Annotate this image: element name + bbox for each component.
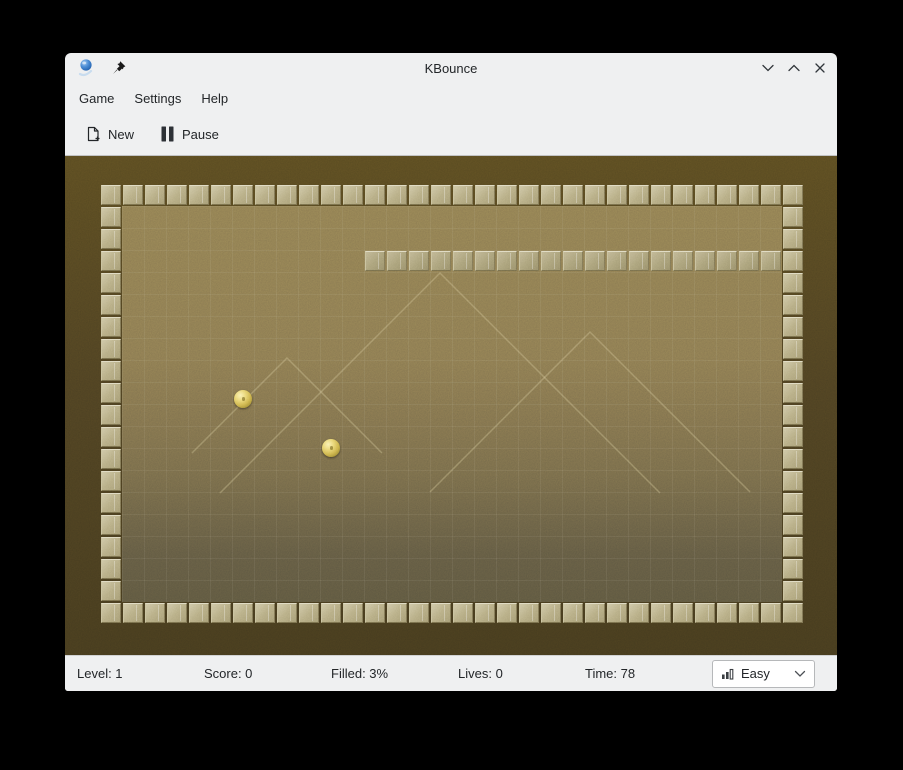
wall-tile [783, 383, 803, 403]
wall-tile [585, 603, 605, 623]
wall-tile [783, 251, 803, 271]
status-level: Level: 1 [77, 666, 204, 681]
wall-tile [475, 603, 495, 623]
wall-tile [101, 493, 121, 513]
wall-tile [673, 185, 693, 205]
wall-tile [277, 185, 297, 205]
wall-tile [277, 603, 297, 623]
wall-tile [629, 603, 649, 623]
wall-tile [519, 185, 539, 205]
wall-tile [101, 581, 121, 601]
statusbar: Level: 1 Score: 0 Filled: 3% Lives: 0 Ti… [65, 655, 837, 691]
difficulty-value: Easy [741, 666, 770, 681]
wall-tile [365, 185, 385, 205]
new-document-icon [85, 126, 101, 142]
filled-tile [387, 251, 407, 271]
filled-tile [431, 251, 451, 271]
wall-tile [101, 427, 121, 447]
filled-tile [695, 251, 715, 271]
wall-tile [211, 185, 231, 205]
wall-tile [365, 603, 385, 623]
wall-tile [101, 229, 121, 249]
wall-tile [167, 603, 187, 623]
filled-tile [497, 251, 517, 271]
pause-label: Pause [182, 127, 219, 142]
wall-tile [783, 581, 803, 601]
menubar: Game Settings Help [65, 83, 837, 113]
pause-icon [160, 126, 175, 142]
filled-tile [365, 251, 385, 271]
wall-tile [783, 515, 803, 535]
wall-tile [101, 339, 121, 359]
wall-tile [783, 317, 803, 337]
filled-tile [651, 251, 671, 271]
wall-tile [607, 603, 627, 623]
wall-tile [695, 185, 715, 205]
wall-tile [541, 185, 561, 205]
wall-tile [431, 603, 451, 623]
filled-tile [563, 251, 583, 271]
wall-tile [783, 207, 803, 227]
wall-tile [255, 185, 275, 205]
chevron-down-icon [794, 670, 806, 678]
filled-tile [453, 251, 473, 271]
filled-tile [585, 251, 605, 271]
wall-tile [101, 449, 121, 469]
wall-tile [717, 185, 737, 205]
status-time: Time: 78 [585, 666, 712, 681]
wall-tile [783, 185, 803, 205]
menu-help[interactable]: Help [191, 87, 238, 110]
wall-tile [101, 185, 121, 205]
wall-tile [431, 185, 451, 205]
wall-tile [233, 185, 253, 205]
titlebar: KBounce [65, 53, 837, 83]
wall-tile [783, 361, 803, 381]
bounce-ball [234, 390, 252, 408]
wall-tile [673, 603, 693, 623]
wall-tile [783, 471, 803, 491]
new-game-label: New [108, 127, 134, 142]
wall-tile [761, 185, 781, 205]
wall-tile [101, 405, 121, 425]
wall-tile [387, 603, 407, 623]
new-game-button[interactable]: New [77, 120, 142, 148]
wall-tile [783, 603, 803, 623]
wall-tile [101, 537, 121, 557]
wall-tile [783, 537, 803, 557]
wall-tile [783, 405, 803, 425]
wall-tile [123, 603, 143, 623]
filled-tile [673, 251, 693, 271]
wall-tile [409, 603, 429, 623]
filled-tile [717, 251, 737, 271]
wall-tile [299, 603, 319, 623]
difficulty-select[interactable]: Easy [712, 660, 815, 688]
wall-tile [783, 427, 803, 447]
wall-tile [321, 185, 341, 205]
wall-tile [563, 603, 583, 623]
filled-tile [409, 251, 429, 271]
wall-tile [101, 361, 121, 381]
wall-tile [255, 603, 275, 623]
filled-tile [629, 251, 649, 271]
wall-tile [101, 273, 121, 293]
filled-tile [761, 251, 781, 271]
wall-tile [783, 559, 803, 579]
wall-tile [607, 185, 627, 205]
wall-tile [101, 295, 121, 315]
wall-tile [783, 449, 803, 469]
wall-tile [167, 185, 187, 205]
wall-tile [101, 603, 121, 623]
wall-tile [189, 185, 209, 205]
wall-tile [783, 339, 803, 359]
filled-tile [519, 251, 539, 271]
wall-tile [783, 493, 803, 513]
wall-tile [651, 603, 671, 623]
game-field[interactable] [100, 184, 804, 624]
status-filled: Filled: 3% [331, 666, 458, 681]
wall-tile [519, 603, 539, 623]
filled-tile [739, 251, 759, 271]
wall-tile [739, 603, 759, 623]
wall-tile [497, 603, 517, 623]
wall-tile [189, 603, 209, 623]
filled-tile [607, 251, 627, 271]
wall-tile [101, 515, 121, 535]
window-title: KBounce [65, 61, 837, 76]
wall-tile [343, 603, 363, 623]
wall-tile [629, 185, 649, 205]
wall-tile [453, 185, 473, 205]
menu-settings[interactable]: Settings [124, 87, 191, 110]
wall-tile [453, 603, 473, 623]
wall-tile [717, 603, 737, 623]
wall-tile [475, 185, 495, 205]
kbounce-window: KBounce Game Settings Help [65, 53, 837, 691]
wall-tile [101, 383, 121, 403]
wall-tile [145, 185, 165, 205]
pause-button[interactable]: Pause [152, 120, 227, 148]
wall-tile [387, 185, 407, 205]
wall-tile [563, 185, 583, 205]
wall-tile [585, 185, 605, 205]
wall-tile [783, 273, 803, 293]
filled-tile [475, 251, 495, 271]
wall-tile [695, 603, 715, 623]
wall-tile [101, 251, 121, 271]
wall-tile [211, 603, 231, 623]
wall-tile [101, 559, 121, 579]
wall-tile [101, 317, 121, 337]
wall-tile [783, 295, 803, 315]
wall-tile [123, 185, 143, 205]
wall-tile [409, 185, 429, 205]
wall-tile [761, 603, 781, 623]
wall-tile [541, 603, 561, 623]
wall-tile [101, 207, 121, 227]
wall-tile [299, 185, 319, 205]
wall-tile [651, 185, 671, 205]
difficulty-bars-icon [721, 667, 735, 681]
wall-tile [321, 603, 341, 623]
bounce-ball [322, 439, 340, 457]
wall-tile [783, 229, 803, 249]
wall-tile [145, 603, 165, 623]
menu-game[interactable]: Game [69, 87, 124, 110]
wall-tile [343, 185, 363, 205]
status-lives: Lives: 0 [458, 666, 585, 681]
wall-tile [739, 185, 759, 205]
wall-tile [233, 603, 253, 623]
wall-tile [101, 471, 121, 491]
toolbar: New Pause [65, 113, 837, 156]
status-score: Score: 0 [204, 666, 331, 681]
game-area [65, 156, 837, 655]
wall-tile [497, 185, 517, 205]
filled-tile [541, 251, 561, 271]
